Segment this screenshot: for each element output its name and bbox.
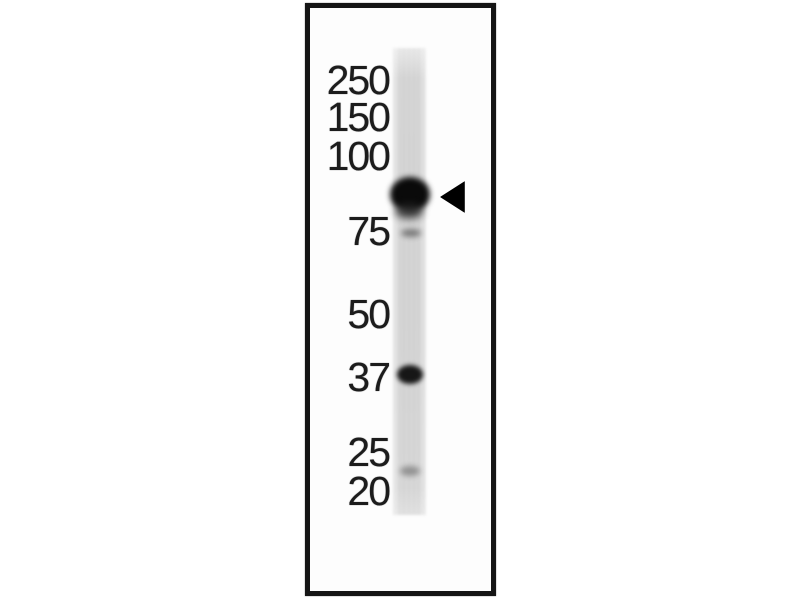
marker-label-25kda: 25 <box>325 432 389 473</box>
marker-label-75kda: 75 <box>325 211 389 252</box>
marker-label-150kda: 150 <box>325 97 389 138</box>
marker-label-37kda: 37 <box>325 357 389 398</box>
band-2 <box>395 204 423 219</box>
gel-lane <box>393 48 426 515</box>
band-5 <box>400 466 420 476</box>
marker-label-100kda: 100 <box>325 136 389 177</box>
marker-label-20kda: 20 <box>325 471 389 512</box>
band-3 <box>401 229 421 237</box>
band-4 <box>397 365 423 384</box>
marker-label-50kda: 50 <box>325 294 389 335</box>
western-blot-figure: 2501501007550372520 <box>0 0 800 600</box>
